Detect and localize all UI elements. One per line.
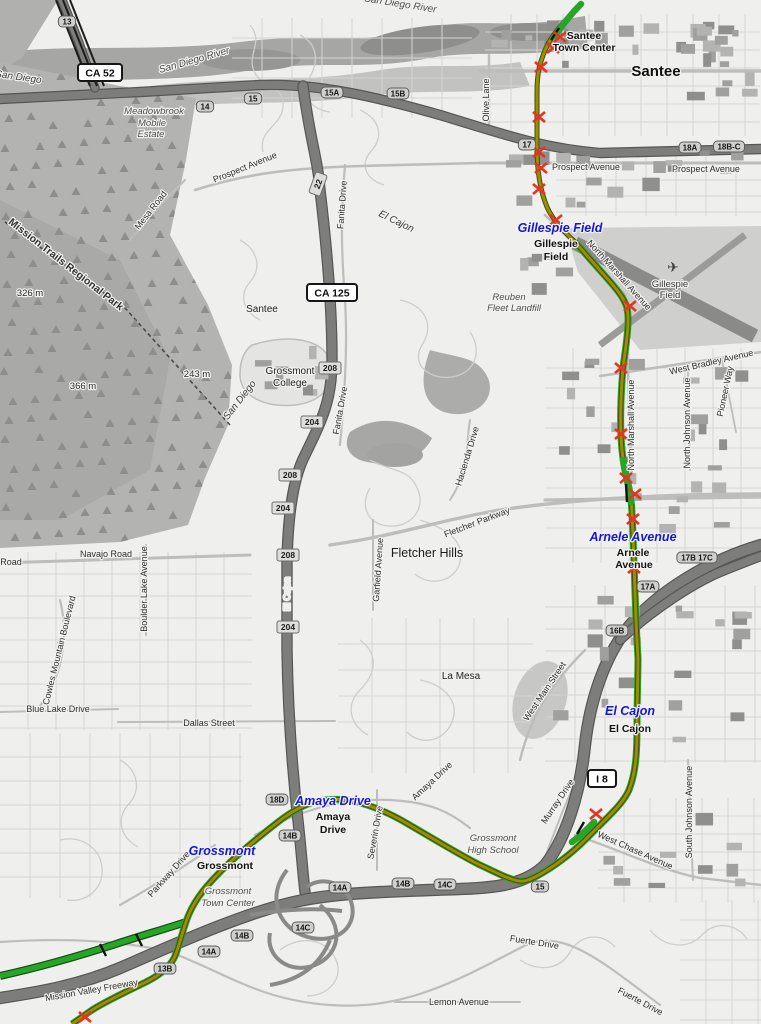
shield-text: CA 52 bbox=[85, 68, 115, 80]
shield-text: 18B-C bbox=[717, 143, 740, 152]
map-label: Town Center bbox=[553, 42, 616, 54]
map: San Diego RiverSan Diego RiverMission Tr… bbox=[0, 0, 761, 1024]
highway-shield: CA 52 bbox=[78, 64, 122, 81]
shield-text: 14B bbox=[396, 880, 411, 889]
shield-text: 18D bbox=[270, 796, 285, 805]
building bbox=[690, 414, 708, 424]
building bbox=[562, 372, 579, 381]
map-label: Reuben bbox=[492, 292, 525, 303]
exit-label: 14A bbox=[329, 882, 351, 893]
building bbox=[735, 879, 745, 887]
building bbox=[697, 27, 712, 36]
building bbox=[642, 178, 659, 191]
building bbox=[673, 737, 686, 743]
exit-label: 14B bbox=[279, 830, 301, 841]
building bbox=[669, 700, 683, 710]
shield-text: 17A bbox=[641, 583, 656, 592]
map-label: Arnele bbox=[617, 547, 650, 559]
map-label: North Marshall Avenue bbox=[626, 380, 636, 471]
shield-text: 14C bbox=[296, 924, 311, 933]
map-label: Town Center bbox=[201, 898, 255, 909]
shield-text: 204 bbox=[305, 417, 319, 427]
building bbox=[520, 258, 528, 271]
building bbox=[676, 606, 682, 612]
building bbox=[727, 843, 742, 851]
building bbox=[643, 23, 659, 33]
building bbox=[730, 712, 744, 721]
building bbox=[733, 629, 750, 640]
shield-text: 13B bbox=[158, 965, 173, 974]
map-canvas: San Diego RiverSan Diego RiverMission Tr… bbox=[0, 0, 761, 1024]
shield-text: 204 bbox=[276, 503, 290, 513]
building bbox=[677, 496, 688, 502]
building bbox=[669, 506, 680, 514]
building bbox=[722, 80, 732, 86]
map-label: Gillespie bbox=[534, 238, 578, 250]
station-label: Arnele Avenue bbox=[588, 530, 676, 544]
shield-text: 15A bbox=[325, 89, 340, 98]
exit-label: 14B bbox=[392, 878, 414, 889]
building bbox=[703, 53, 711, 67]
building bbox=[588, 619, 602, 629]
map-label: High School bbox=[467, 845, 519, 856]
map-label: Santee bbox=[567, 30, 602, 42]
exit-label: 14B bbox=[231, 930, 253, 941]
shield-text: CA 125 bbox=[314, 288, 349, 300]
exit-label: 15 bbox=[244, 93, 261, 104]
map-label: Meadowbrook bbox=[124, 106, 185, 117]
building bbox=[619, 26, 634, 37]
building bbox=[715, 619, 724, 626]
building bbox=[553, 710, 568, 720]
building bbox=[720, 47, 733, 57]
building bbox=[735, 612, 752, 619]
map-label: Grossmont bbox=[266, 366, 315, 377]
building bbox=[600, 647, 609, 661]
exit-label: 17 bbox=[518, 139, 535, 150]
exit-label: 18A bbox=[679, 142, 701, 153]
building bbox=[559, 446, 570, 455]
building bbox=[556, 268, 573, 277]
building bbox=[629, 359, 645, 370]
shield-text: 208 bbox=[281, 550, 295, 560]
building bbox=[501, 30, 511, 41]
station-label: Amaya Drive bbox=[294, 794, 371, 808]
route-shield: 208 bbox=[277, 549, 299, 561]
building bbox=[719, 439, 727, 450]
map-label: Drive bbox=[320, 824, 346, 836]
highway-shield: I 8 bbox=[588, 770, 616, 787]
shield-text: 17B 17C bbox=[681, 554, 713, 563]
map-label: El Cajon bbox=[282, 577, 292, 611]
building bbox=[565, 198, 575, 208]
building bbox=[698, 865, 713, 874]
route-shield: 208 bbox=[319, 362, 341, 374]
map-label: Navajo Road bbox=[80, 549, 132, 559]
building bbox=[718, 25, 734, 34]
shield-text: I 8 bbox=[596, 774, 608, 786]
exit-label: 13B bbox=[154, 963, 176, 974]
highway-shield: CA 125 bbox=[307, 284, 357, 301]
map-label: La Mesa bbox=[442, 671, 481, 682]
exit-label: 13 bbox=[58, 16, 75, 27]
shield-text: 14A bbox=[202, 948, 217, 957]
building bbox=[687, 92, 705, 101]
map-label: Mobile bbox=[138, 118, 166, 129]
map-label: Lemon Avenue bbox=[429, 997, 489, 1007]
exit-label: 14A bbox=[198, 946, 220, 957]
building bbox=[708, 465, 722, 470]
shield-text: 14 bbox=[201, 103, 210, 112]
building bbox=[700, 150, 710, 155]
shield-text: 16B bbox=[610, 627, 625, 636]
map-label: Amaya bbox=[316, 811, 351, 823]
shield-text: 14B bbox=[235, 932, 250, 941]
exit-label: 14 bbox=[196, 101, 213, 112]
building bbox=[532, 283, 547, 295]
building bbox=[532, 254, 542, 262]
airplane-icon: ✈ bbox=[667, 259, 679, 275]
building bbox=[696, 813, 714, 825]
map-label: Field bbox=[660, 290, 681, 301]
building bbox=[653, 161, 666, 173]
shield-text: 208 bbox=[323, 363, 337, 373]
exit-label: 17A bbox=[637, 581, 659, 592]
building bbox=[516, 195, 532, 205]
station-label: El Cajon bbox=[605, 704, 655, 718]
shield-text: 14C bbox=[438, 881, 453, 890]
building bbox=[731, 151, 743, 160]
shield-text: 18A bbox=[683, 144, 698, 153]
building bbox=[622, 161, 634, 170]
building bbox=[613, 866, 623, 874]
building bbox=[732, 639, 742, 649]
exit-label: 14C bbox=[434, 879, 456, 890]
exit-label: 18B-C bbox=[714, 141, 745, 152]
shield-text: 15 bbox=[249, 95, 258, 104]
building bbox=[648, 883, 665, 888]
map-label: Santee bbox=[246, 304, 278, 315]
shield-text: 13 bbox=[63, 18, 72, 27]
building bbox=[714, 522, 730, 527]
building bbox=[525, 35, 532, 40]
building bbox=[735, 370, 748, 381]
map-label: North Johnson Avenue bbox=[682, 378, 692, 469]
exit-label: 18D bbox=[266, 794, 288, 805]
building bbox=[603, 856, 614, 865]
map-label: Fleet Landfill bbox=[487, 303, 542, 314]
building bbox=[742, 89, 758, 97]
building bbox=[577, 202, 586, 208]
building bbox=[732, 30, 738, 36]
shield-text: 17 bbox=[523, 141, 532, 150]
building bbox=[567, 388, 575, 399]
map-label: Blue Lake Drive bbox=[26, 704, 90, 714]
route-shield: 204 bbox=[272, 502, 294, 514]
city-label: Santee bbox=[631, 63, 680, 80]
station-label: Gillespie Field bbox=[518, 221, 603, 235]
building bbox=[681, 44, 695, 54]
building bbox=[598, 444, 611, 453]
exit-label: 14C bbox=[292, 922, 314, 933]
building bbox=[712, 482, 726, 493]
route-shield: 204 bbox=[277, 621, 299, 633]
map-label: 326 m bbox=[17, 288, 43, 299]
map-label: Boulder Lake Avenue bbox=[139, 546, 149, 631]
exit-label: 15B bbox=[387, 88, 409, 99]
shield-text: 204 bbox=[281, 622, 295, 632]
exit-label: 16B bbox=[606, 625, 628, 636]
building bbox=[586, 406, 594, 417]
building bbox=[309, 346, 317, 359]
map-label: Olive Lane bbox=[481, 78, 491, 121]
map-label: El Cajon bbox=[609, 723, 651, 735]
building bbox=[691, 481, 702, 492]
map-label: Road bbox=[0, 557, 22, 567]
map-label: College bbox=[273, 378, 307, 389]
map-label: Grossmont bbox=[470, 833, 517, 844]
building bbox=[716, 87, 729, 96]
building bbox=[745, 72, 754, 85]
building bbox=[619, 678, 635, 689]
map-label: South Johnson Avenue bbox=[684, 766, 694, 858]
shield-text: 15 bbox=[536, 883, 545, 892]
building bbox=[674, 671, 691, 678]
building bbox=[720, 61, 729, 67]
building bbox=[676, 611, 693, 618]
building bbox=[715, 36, 728, 45]
building bbox=[607, 187, 623, 198]
canyon-area bbox=[367, 443, 423, 467]
building bbox=[632, 45, 638, 55]
map-label: Estate bbox=[138, 129, 165, 140]
map-label: Grossmont bbox=[197, 860, 254, 872]
building bbox=[588, 634, 603, 647]
building bbox=[586, 178, 601, 186]
route-shield: 208 bbox=[279, 469, 301, 481]
exit-label: 15 bbox=[531, 881, 548, 892]
map-label: Gillespie bbox=[652, 279, 688, 290]
building bbox=[726, 864, 738, 877]
map-label: 366 m bbox=[70, 381, 96, 392]
map-label: Grossmont bbox=[205, 886, 252, 897]
map-label: Field bbox=[544, 251, 569, 263]
building bbox=[585, 359, 599, 365]
map-label: Dallas Street bbox=[183, 718, 235, 728]
map-label: Prospect Avenue bbox=[672, 164, 740, 174]
shield-text: 14A bbox=[333, 884, 348, 893]
building bbox=[597, 596, 613, 605]
building bbox=[562, 61, 569, 68]
map-label: 243 m bbox=[184, 369, 210, 380]
map-label: Fletcher Hills bbox=[391, 546, 463, 560]
shield-text: 14B bbox=[283, 832, 298, 841]
route-shield: 204 bbox=[301, 416, 323, 428]
map-label: Prospect Avenue bbox=[552, 162, 620, 172]
exit-label: 15A bbox=[321, 87, 343, 98]
building bbox=[614, 878, 630, 886]
map-label: Avenue bbox=[615, 559, 653, 571]
building bbox=[491, 40, 507, 48]
station-tick bbox=[626, 484, 627, 502]
shield-text: 208 bbox=[283, 470, 297, 480]
station-label: Grossmont bbox=[189, 844, 257, 858]
building bbox=[506, 160, 521, 167]
exit-label: 17B 17C bbox=[677, 552, 717, 563]
shield-text: 15B bbox=[391, 90, 406, 99]
